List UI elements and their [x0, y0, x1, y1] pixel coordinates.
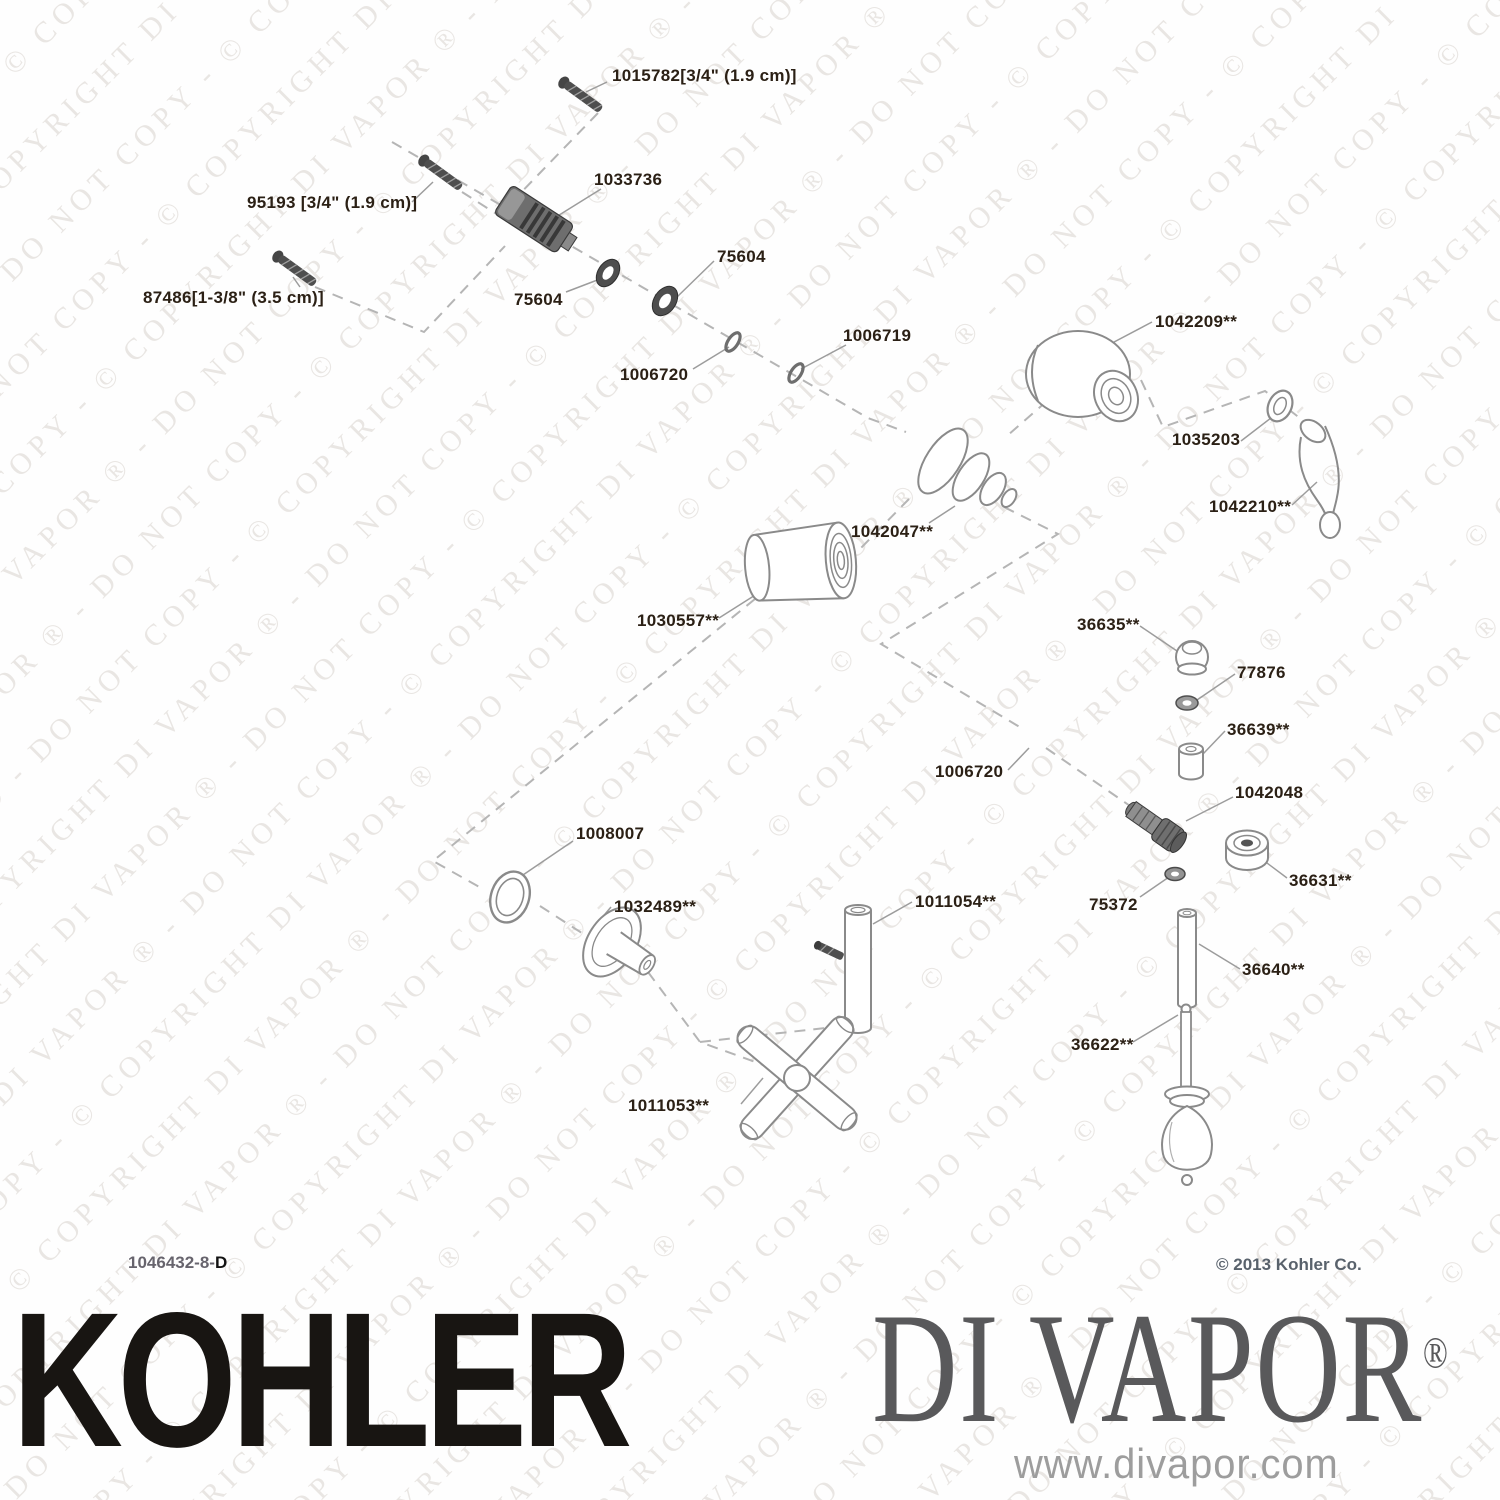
document-number-base: 1046432-8-	[128, 1253, 215, 1272]
part-cap-36635-drawing	[1176, 641, 1208, 675]
divapor-logo: DI VAPOR®	[872, 1290, 1448, 1448]
part-label-75372: 75372	[1089, 895, 1138, 915]
part-label-1033736: 1033736	[594, 170, 662, 190]
part-label-1035203: 1035203	[1172, 430, 1240, 450]
part-sleeve-1030557-drawing	[742, 521, 859, 606]
exploded-parts-drawing	[0, 0, 1500, 1310]
part-screw-1015782-drawing	[556, 74, 605, 114]
part-cone-1042047-drawing	[909, 421, 1020, 510]
part-washer-77876-drawing	[1176, 696, 1198, 710]
part-screw-87486-drawing	[270, 248, 319, 288]
part-cap-36631-drawing	[1226, 831, 1268, 871]
part-screw-95193-drawing	[416, 152, 465, 192]
part-label-1011054: 1011054**	[915, 892, 996, 912]
part-stem-1042048-drawing	[1120, 796, 1190, 856]
part-label-1032489: 1032489**	[614, 897, 696, 917]
part-cartridge-1033736-drawing	[494, 185, 582, 259]
part-lever-handle-1042210-drawing	[1296, 415, 1340, 538]
part-label-1042209: 1042209**	[1155, 312, 1237, 332]
kohler-parts-diagram-page: © COPYRIGHT DI VAPOR ® - DO NOT COPY - ©…	[0, 0, 1500, 1500]
part-label-1042210: 1042210**	[1209, 497, 1291, 517]
part-label-36639: 36639**	[1227, 720, 1290, 740]
part-label-1015782: 1015782[3/4" (1.9 cm)]	[612, 66, 797, 86]
part-shroud-1042209-drawing	[1026, 331, 1146, 428]
part-label-1011053: 1011053**	[628, 1096, 709, 1116]
part-label-1042047: 1042047**	[851, 522, 933, 542]
kohler-copyright-notice: © 2013 Kohler Co.	[1216, 1255, 1362, 1275]
part-label-1042048: 1042048	[1235, 783, 1303, 803]
part-cylinder-36639-drawing	[1179, 744, 1203, 780]
part-oring-1006720-upper-drawing	[723, 330, 743, 353]
part-label-1030557: 1030557**	[637, 611, 719, 631]
divapor-logo-text: DI VAPOR	[872, 1281, 1423, 1456]
part-nut-75372-drawing	[1165, 868, 1185, 881]
part-stem-36622-drawing	[1162, 1005, 1212, 1186]
part-label-1006720-lower: 1006720	[935, 762, 1003, 782]
part-label-1008007: 1008007	[576, 824, 644, 844]
part-label-36631: 36631**	[1289, 871, 1352, 891]
document-number: 1046432-8-D	[128, 1253, 227, 1273]
document-revision: D	[215, 1253, 227, 1272]
part-tube-36640-drawing	[1178, 909, 1196, 1008]
kohler-logo: KOHLER	[12, 1284, 627, 1476]
part-label-36635: 36635**	[1077, 615, 1140, 635]
part-label-77876: 77876	[1237, 663, 1286, 683]
part-label-87486: 87486[1-3/8" (3.5 cm)]	[143, 288, 324, 308]
part-label-36640: 36640**	[1242, 960, 1305, 980]
part-label-95193: 95193 [3/4" (1.9 cm)]	[247, 193, 417, 213]
part-label-36622: 36622**	[1071, 1035, 1134, 1055]
part-oring-1008007-drawing	[484, 866, 536, 927]
part-label-75604-left: 75604	[514, 290, 563, 310]
part-washer-75604-right-drawing	[647, 282, 683, 321]
part-label-1006719: 1006719	[843, 326, 911, 346]
part-label-1006720-upper: 1006720	[620, 365, 688, 385]
part-label-75604-right: 75604	[717, 247, 766, 267]
registered-trademark-icon: ®	[1423, 1328, 1448, 1377]
divapor-website-url: www.divapor.com	[1014, 1440, 1339, 1488]
part-tube-1011054-drawing	[813, 905, 871, 1033]
